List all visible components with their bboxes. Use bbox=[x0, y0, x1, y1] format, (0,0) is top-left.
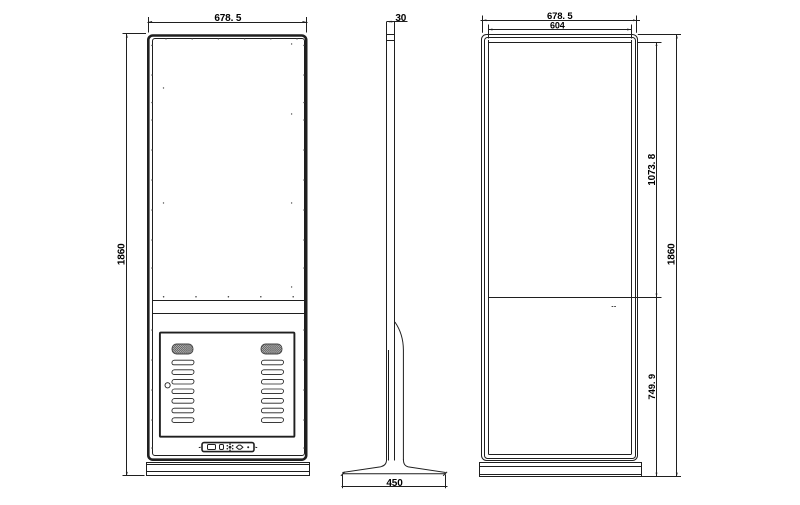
svg-text:1073. 8: 1073. 8 bbox=[647, 153, 658, 185]
svg-text:450: 450 bbox=[386, 478, 403, 489]
svg-text:1860: 1860 bbox=[117, 243, 128, 265]
svg-text:678. 5: 678. 5 bbox=[214, 13, 241, 24]
svg-text:1860: 1860 bbox=[667, 243, 678, 265]
svg-text:30: 30 bbox=[395, 13, 406, 24]
svg-text:749. 9: 749. 9 bbox=[647, 374, 658, 400]
svg-text:604: 604 bbox=[550, 21, 565, 31]
